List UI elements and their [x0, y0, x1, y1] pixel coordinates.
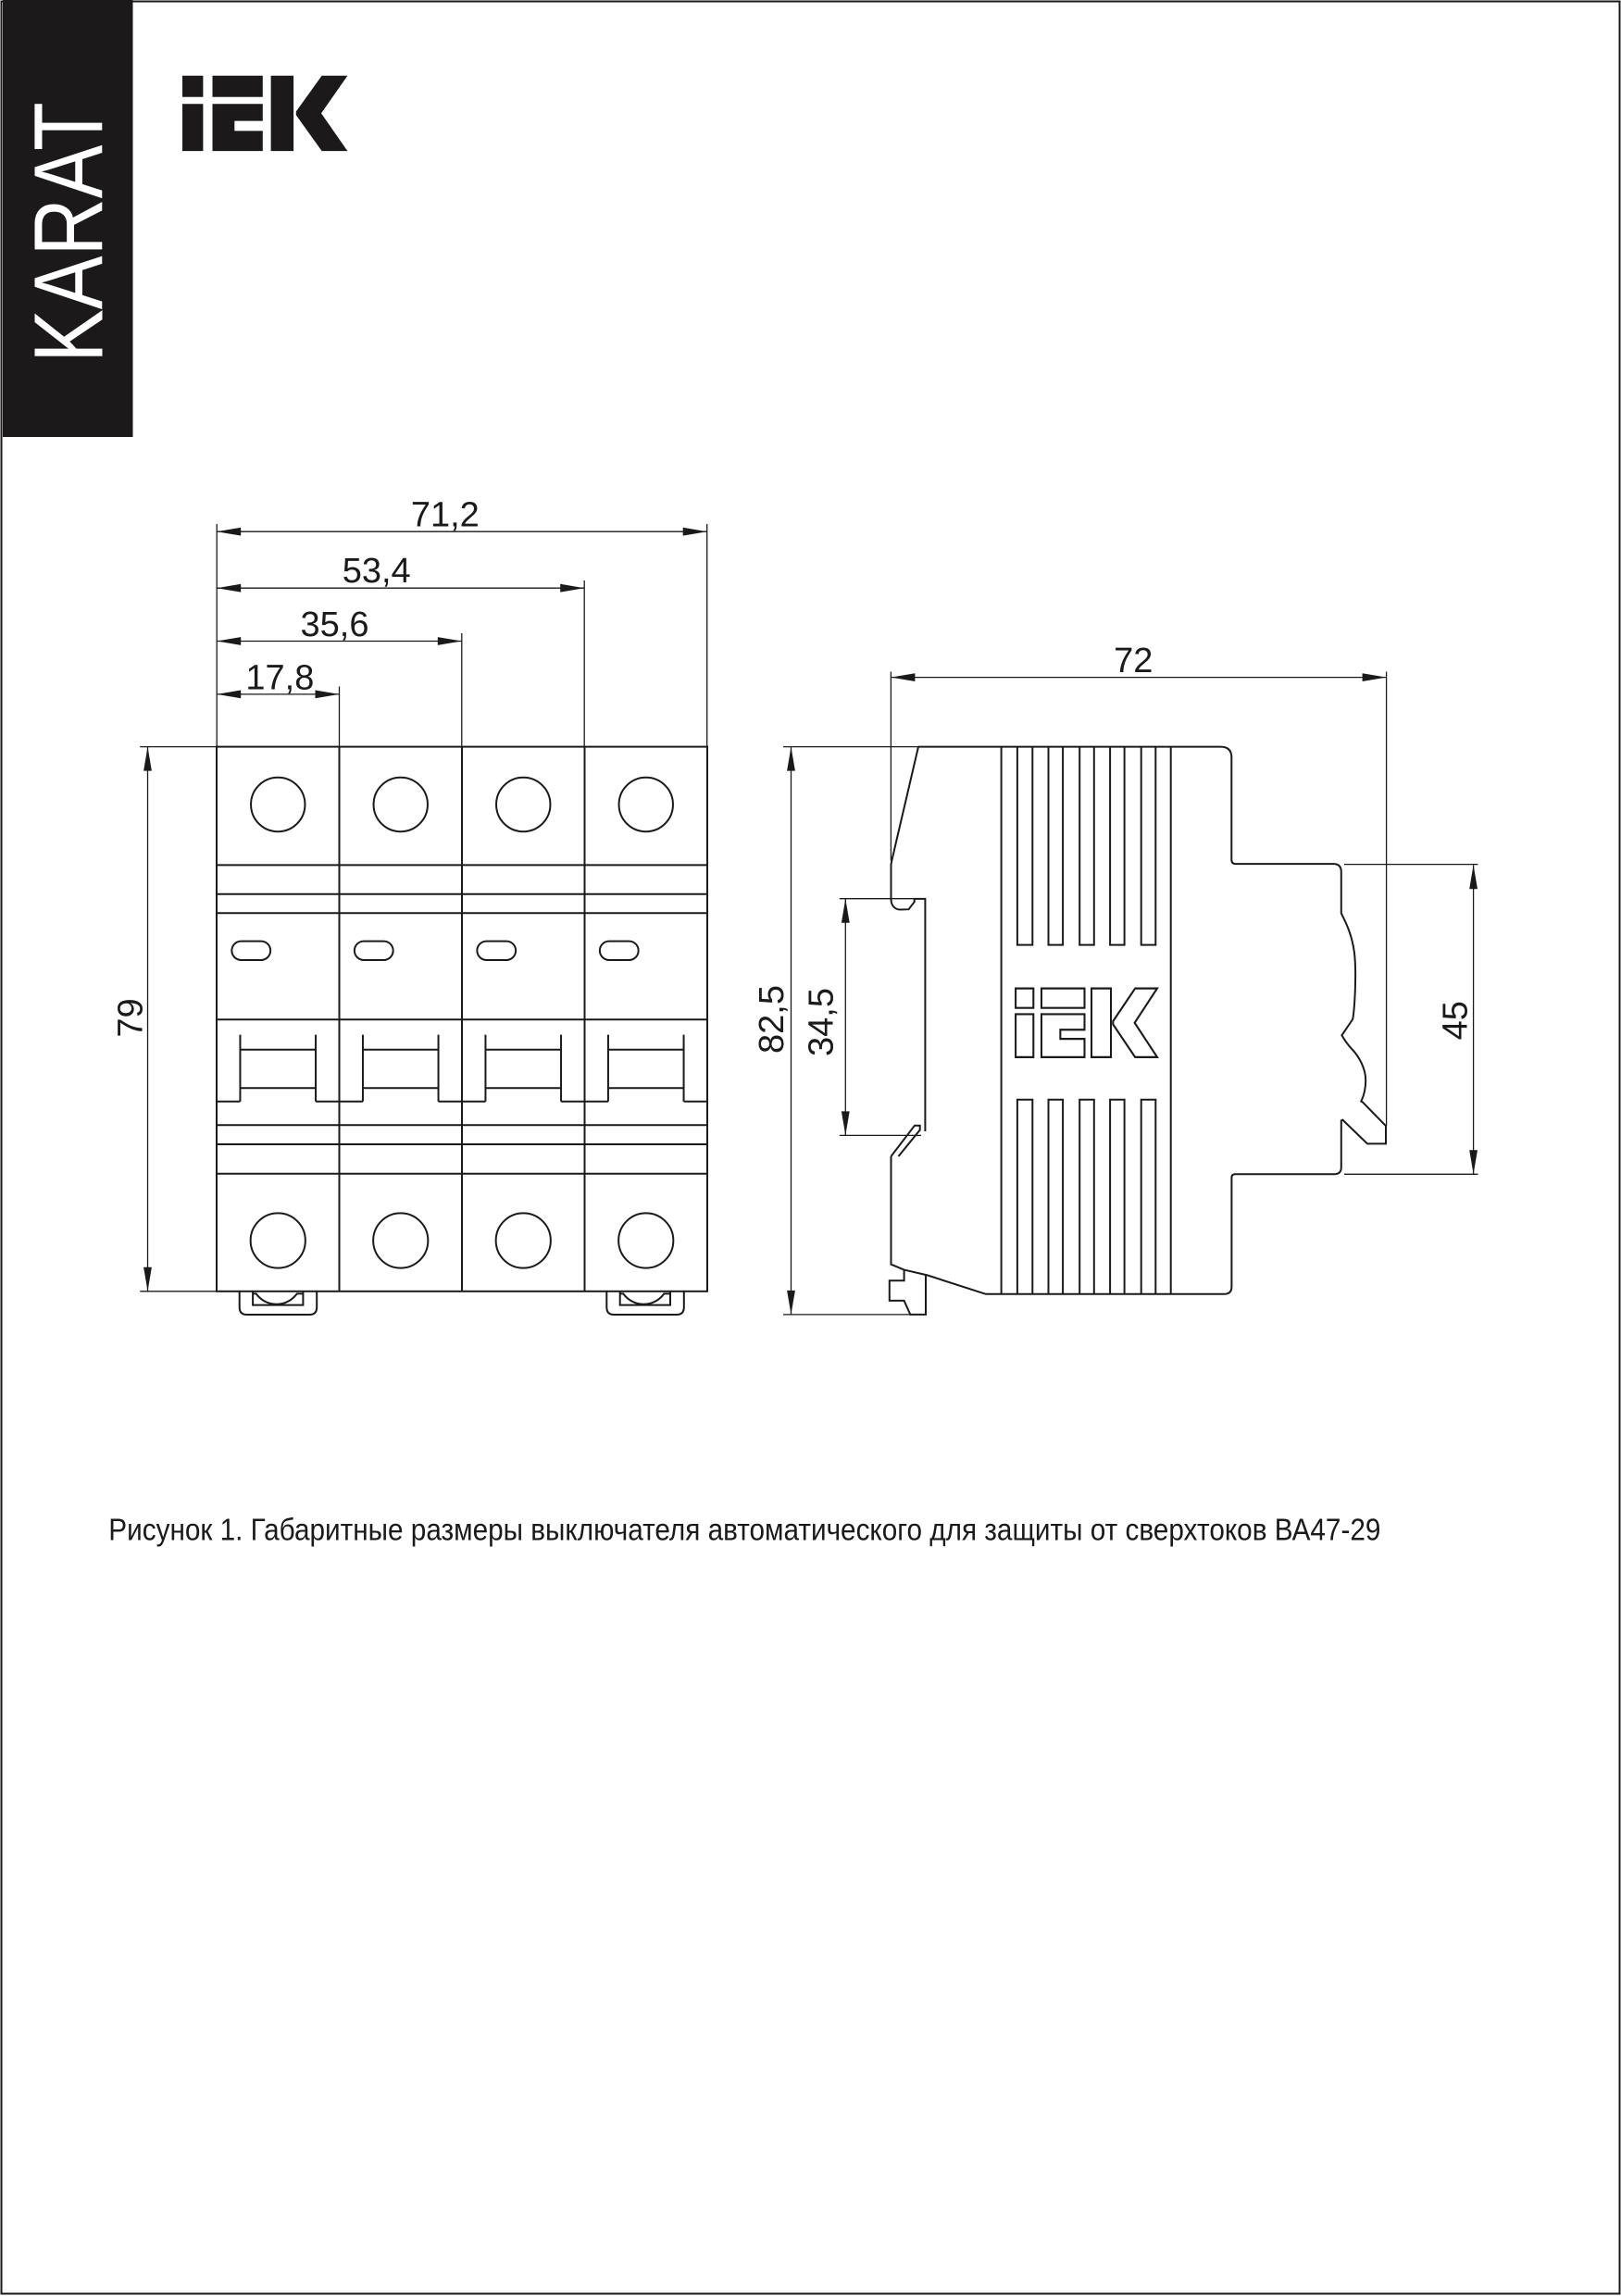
- svg-text:53,4: 53,4: [343, 552, 411, 591]
- svg-text:45: 45: [1436, 1001, 1475, 1040]
- svg-text:17,8: 17,8: [245, 659, 314, 698]
- svg-text:34,5: 34,5: [803, 988, 842, 1056]
- svg-text:KARAT: KARAT: [15, 102, 123, 363]
- svg-text:82,5: 82,5: [753, 985, 792, 1054]
- svg-text:79: 79: [111, 998, 150, 1037]
- svg-text:35,6: 35,6: [301, 605, 369, 644]
- svg-text:Рисунок 1. Габаритные размеры: Рисунок 1. Габаритные размеры выключател…: [108, 1512, 1380, 1547]
- svg-text:72: 72: [1114, 642, 1153, 680]
- svg-text:71,2: 71,2: [411, 496, 480, 535]
